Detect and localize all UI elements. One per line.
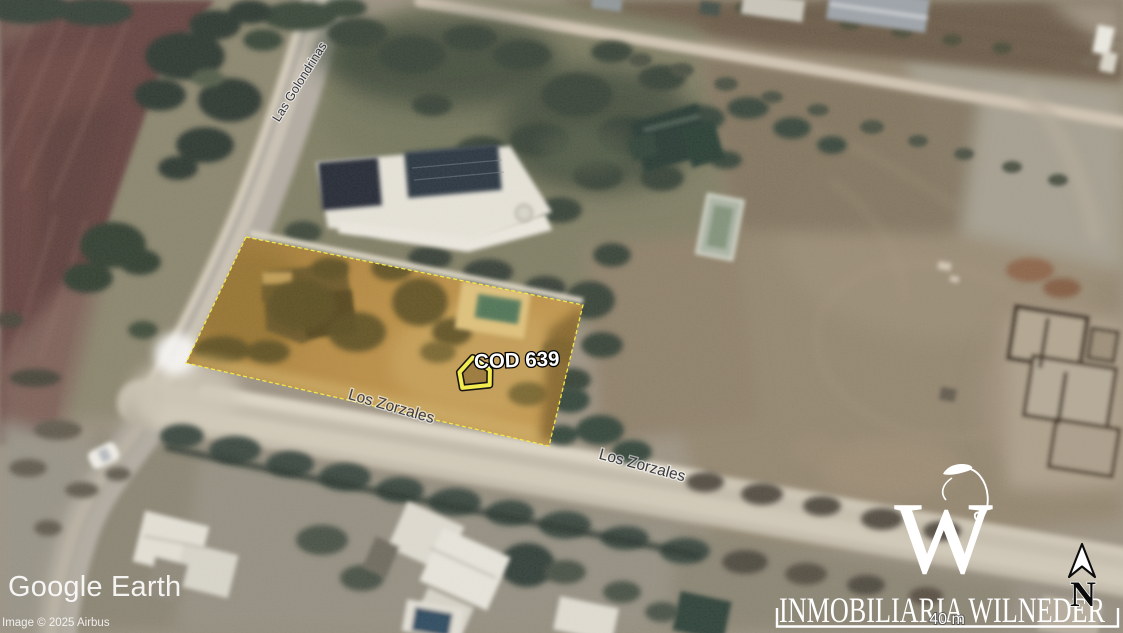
svg-text:Image © 2025 Airbus: Image © 2025 Airbus xyxy=(2,617,110,629)
svg-text:COD 639: COD 639 xyxy=(474,348,560,374)
svg-text:Google Earth: Google Earth xyxy=(8,571,181,603)
svg-text:N: N xyxy=(1070,574,1096,614)
svg-text:W: W xyxy=(895,482,993,594)
svg-text:40 m: 40 m xyxy=(929,611,965,628)
